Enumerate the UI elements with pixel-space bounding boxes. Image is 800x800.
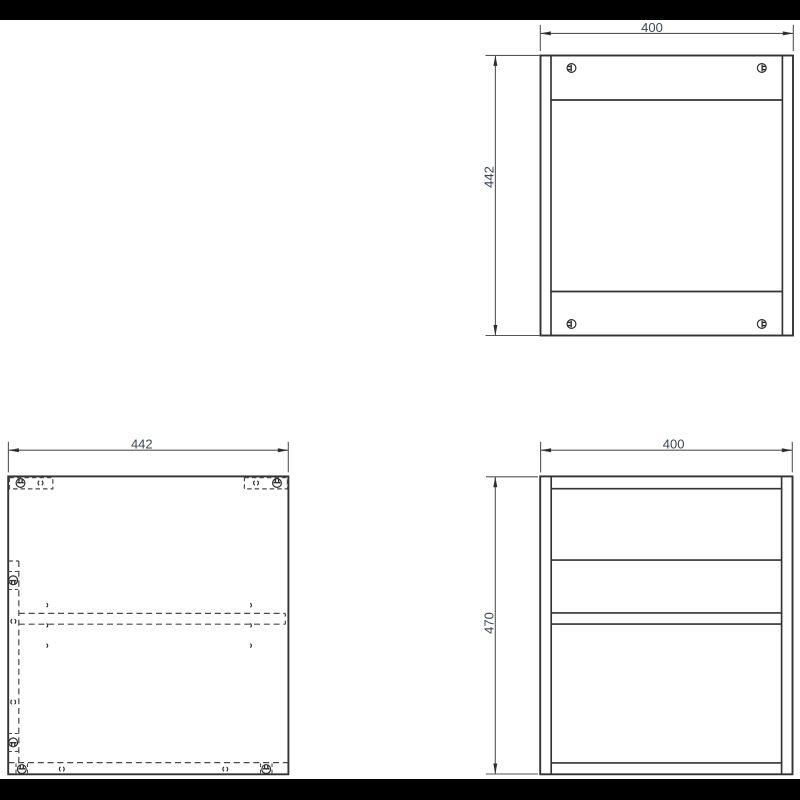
svg-text:470: 470	[481, 612, 496, 634]
svg-text:442: 442	[131, 437, 153, 452]
svg-text:400: 400	[663, 437, 685, 452]
svg-text:442: 442	[481, 166, 496, 188]
svg-text:400: 400	[641, 20, 663, 35]
